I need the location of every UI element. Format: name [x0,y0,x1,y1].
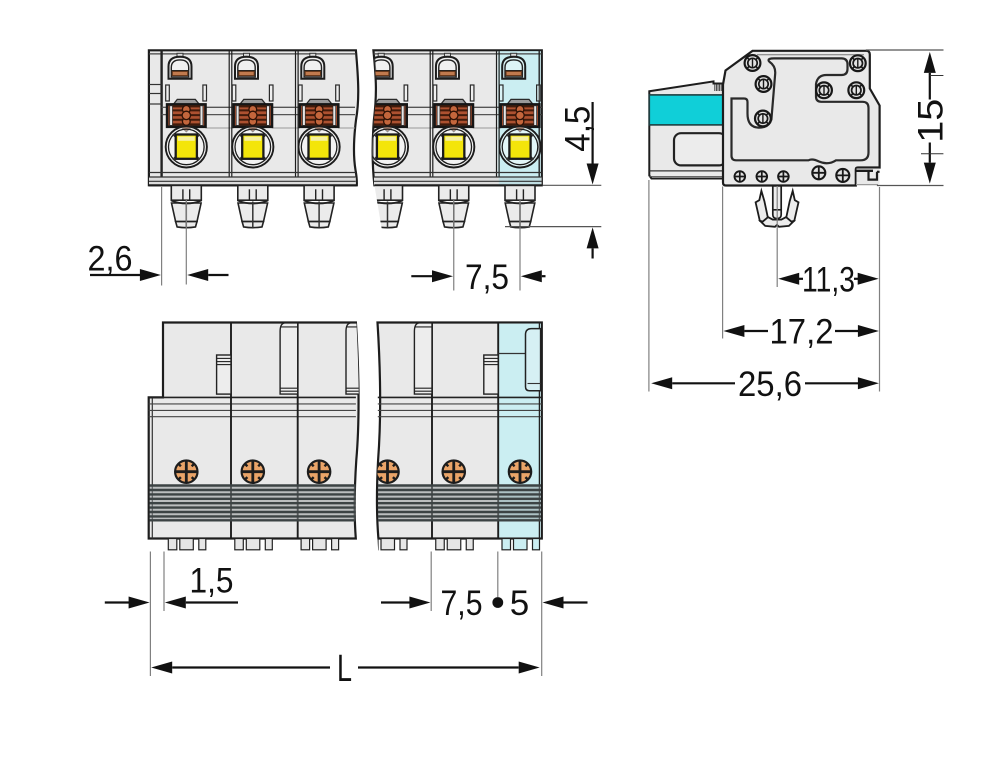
svg-text:5: 5 [510,584,529,623]
svg-text:25,6: 25,6 [738,365,802,404]
svg-text:4,5: 4,5 [559,106,598,152]
svg-text:2,6: 2,6 [88,240,133,279]
svg-text:15: 15 [911,99,950,143]
svg-text:7,5: 7,5 [465,258,509,297]
svg-text:1,5: 1,5 [190,562,234,601]
svg-text:L: L [337,648,352,690]
svg-text:11,3: 11,3 [802,260,855,299]
svg-text:17,2: 17,2 [770,313,834,352]
svg-text:7,5: 7,5 [441,584,483,623]
